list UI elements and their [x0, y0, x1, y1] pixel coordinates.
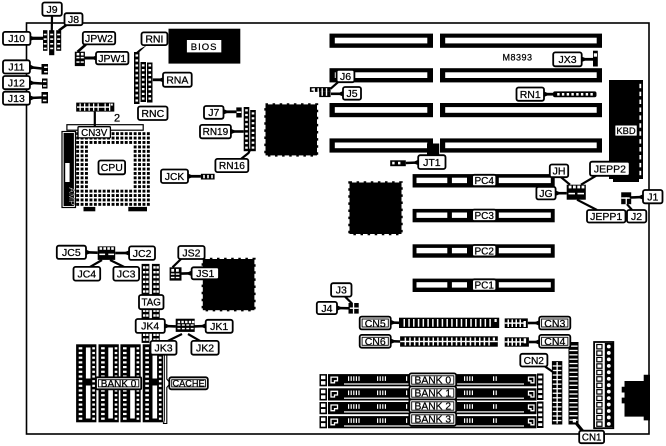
svg-text:JK2: JK2 — [196, 343, 214, 355]
svg-text:CN2: CN2 — [524, 356, 545, 367]
svg-text:J8: J8 — [68, 14, 79, 26]
svg-text:CPU: CPU — [101, 162, 123, 174]
svg-text:JEPP2: JEPP2 — [594, 164, 626, 176]
svg-text:CN3V: CN3V — [81, 128, 108, 139]
svg-text:JX3: JX3 — [558, 54, 576, 66]
svg-text:JC5: JC5 — [62, 247, 81, 259]
svg-text:BANK 0: BANK 0 — [101, 379, 137, 390]
svg-text:JS2: JS2 — [182, 247, 200, 259]
svg-text:J2: J2 — [631, 211, 642, 223]
svg-text:CN6: CN6 — [365, 336, 386, 348]
svg-text:KBD: KBD — [616, 125, 636, 136]
svg-text:TAG: TAG — [141, 298, 160, 309]
svg-text:J12: J12 — [8, 77, 25, 89]
svg-text:RN1: RN1 — [520, 89, 541, 101]
svg-text:CACHE: CACHE — [173, 379, 205, 389]
svg-text:JC3: JC3 — [117, 269, 136, 281]
svg-text:CN3: CN3 — [544, 318, 565, 330]
svg-text:RNC: RNC — [141, 108, 164, 120]
svg-text:RN19: RN19 — [203, 127, 229, 138]
svg-text:J9: J9 — [47, 4, 58, 16]
svg-text:JG: JG — [539, 188, 552, 200]
svg-text:J6: J6 — [340, 71, 351, 83]
svg-text:JC4: JC4 — [77, 269, 96, 281]
svg-text:J5: J5 — [346, 88, 357, 100]
svg-text:JK4: JK4 — [141, 321, 159, 333]
svg-text:JPW1: JPW1 — [98, 53, 126, 65]
svg-text:BANK 2: BANK 2 — [414, 402, 451, 413]
svg-text:J4: J4 — [321, 303, 332, 315]
svg-text:JT1: JT1 — [423, 157, 441, 169]
svg-text:PC2: PC2 — [474, 246, 494, 257]
svg-text:J10: J10 — [8, 33, 25, 45]
svg-text:RNI: RNI — [145, 34, 163, 46]
svg-text:PC3: PC3 — [474, 211, 494, 222]
svg-text:RN16: RN16 — [219, 161, 245, 172]
svg-text:J11: J11 — [8, 62, 24, 74]
svg-text:JEPP1: JEPP1 — [590, 211, 622, 223]
svg-text:JPW2: JPW2 — [85, 33, 113, 45]
svg-text:PC1: PC1 — [474, 281, 494, 292]
svg-text:BANK 3: BANK 3 — [414, 415, 451, 426]
svg-text:2: 2 — [114, 113, 120, 125]
svg-text:BIOS: BIOS — [191, 42, 218, 53]
svg-text:PC4: PC4 — [474, 176, 494, 187]
svg-text:JK3: JK3 — [154, 343, 172, 355]
svg-text:BANK 0: BANK 0 — [414, 376, 451, 387]
svg-text:AMP: AMP — [67, 187, 77, 206]
svg-text:CN1: CN1 — [582, 433, 602, 444]
svg-text:J7: J7 — [208, 107, 219, 119]
svg-text:JS1: JS1 — [196, 268, 214, 280]
svg-text:CN4: CN4 — [544, 336, 565, 348]
svg-text:JC2: JC2 — [133, 248, 152, 260]
svg-text:M8393: M8393 — [503, 53, 533, 63]
svg-text:JK1: JK1 — [210, 321, 228, 333]
svg-text:BANK 1: BANK 1 — [414, 389, 451, 400]
svg-text:J3: J3 — [336, 285, 347, 297]
svg-text:JCK: JCK — [165, 172, 184, 183]
svg-text:CN5: CN5 — [365, 318, 386, 330]
svg-text:J1: J1 — [647, 191, 658, 203]
svg-text:JH: JH — [553, 166, 566, 178]
svg-text:J13: J13 — [8, 93, 25, 105]
svg-text:RNA: RNA — [166, 75, 188, 87]
